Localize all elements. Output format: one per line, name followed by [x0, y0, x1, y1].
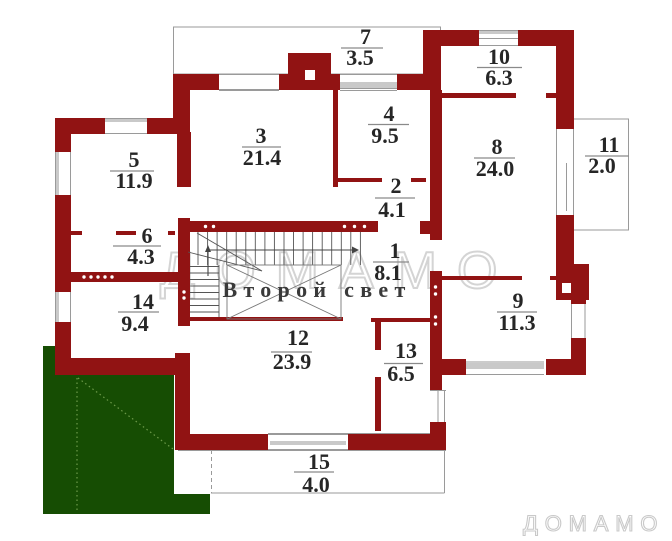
svg-text:4.1: 4.1: [378, 197, 406, 222]
svg-text:9.5: 9.5: [371, 123, 399, 148]
svg-text:ДОМАМО: ДОМАМО: [523, 511, 664, 536]
svg-text:6.5: 6.5: [387, 361, 415, 386]
svg-text:24.0: 24.0: [476, 156, 515, 181]
svg-text:12: 12: [287, 325, 309, 350]
svg-text:3.5: 3.5: [346, 45, 374, 70]
svg-text:11.9: 11.9: [115, 168, 152, 193]
svg-text:9.4: 9.4: [121, 311, 149, 336]
svg-text:2.0: 2.0: [588, 153, 616, 178]
svg-text:15: 15: [308, 449, 330, 474]
svg-text:21.4: 21.4: [243, 145, 282, 170]
svg-text:4.0: 4.0: [302, 472, 330, 497]
svg-text:2: 2: [391, 173, 402, 198]
svg-text:4.3: 4.3: [127, 244, 155, 269]
svg-text:13: 13: [395, 338, 417, 363]
svg-text:Второй свет: Второй свет: [222, 277, 411, 302]
svg-text:23.9: 23.9: [273, 349, 312, 374]
svg-text:6.3: 6.3: [485, 65, 513, 90]
svg-text:11.3: 11.3: [498, 310, 535, 335]
